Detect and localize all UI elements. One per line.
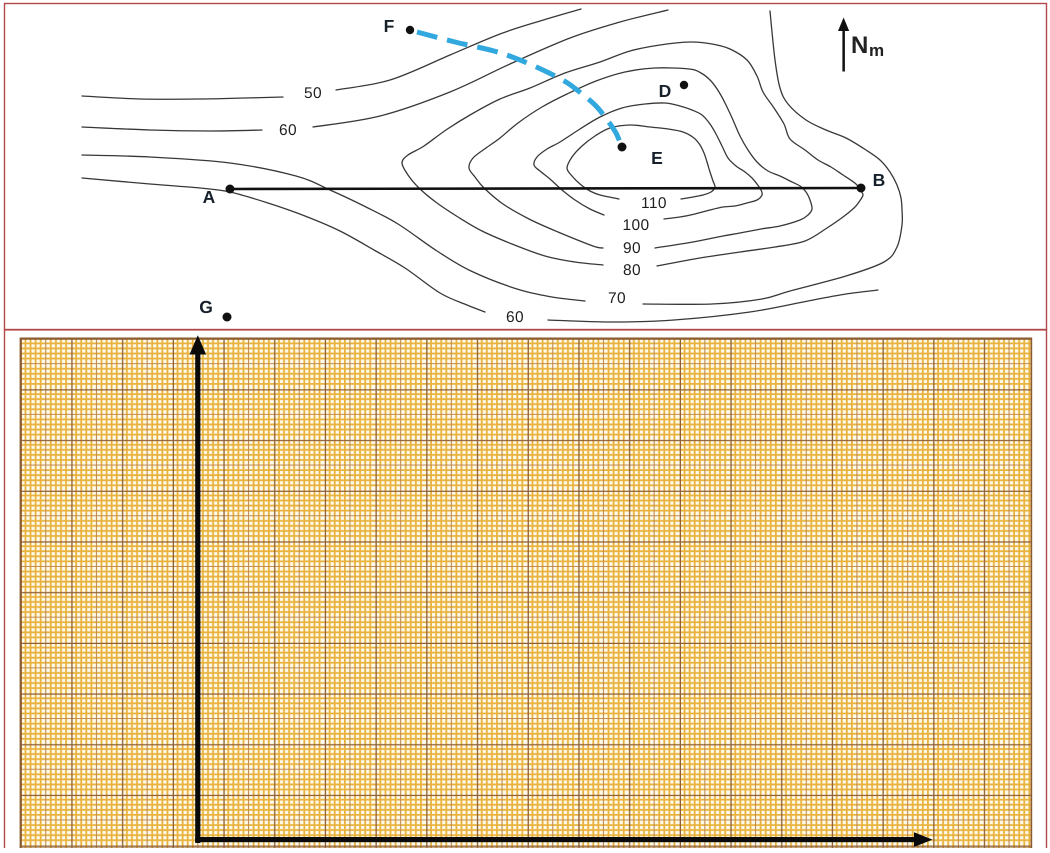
svg-text:70: 70 <box>608 290 626 307</box>
svg-text:G: G <box>199 297 213 317</box>
svg-text:F: F <box>384 16 395 36</box>
svg-text:B: B <box>873 170 886 190</box>
svg-text:A: A <box>203 187 216 207</box>
svg-text:100: 100 <box>622 217 649 234</box>
svg-text:60: 60 <box>506 309 524 326</box>
svg-text:N: N <box>851 32 868 59</box>
svg-text:50: 50 <box>304 85 322 102</box>
svg-text:m: m <box>869 41 884 60</box>
svg-text:90: 90 <box>623 240 641 257</box>
svg-text:E: E <box>651 148 663 168</box>
svg-text:60: 60 <box>279 122 297 139</box>
svg-text:110: 110 <box>641 195 667 212</box>
svg-text:D: D <box>659 81 672 101</box>
svg-text:80: 80 <box>623 262 641 279</box>
